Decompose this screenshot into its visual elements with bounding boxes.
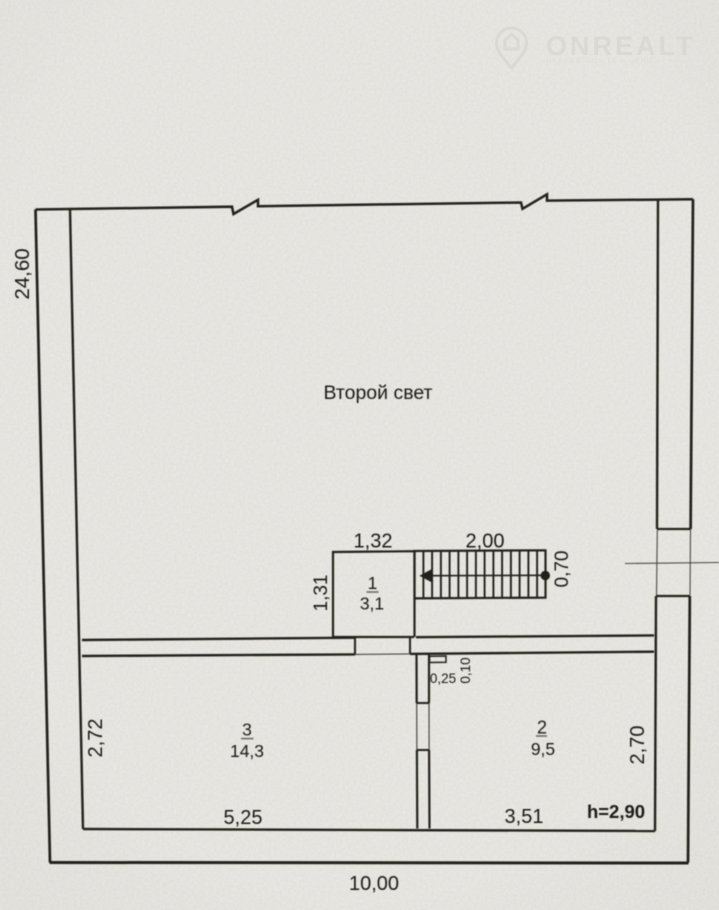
svg-text:0,70: 0,70 — [552, 551, 573, 588]
svg-text:24,60: 24,60 — [11, 248, 34, 299]
svg-text:5,25: 5,25 — [224, 807, 263, 829]
svg-text:0,25: 0,25 — [430, 671, 456, 686]
svg-text:9,5: 9,5 — [531, 739, 555, 759]
svg-text:h=2,90: h=2,90 — [587, 801, 645, 822]
svg-text:1: 1 — [368, 573, 378, 593]
svg-text:НЕДВИЖИМОСТЬ И ЦЕНЫ: НЕДВИЖИМОСТЬ И ЦЕНЫ — [547, 58, 654, 65]
svg-text:2,72: 2,72 — [85, 719, 107, 758]
svg-text:14,3: 14,3 — [230, 741, 264, 761]
svg-text:2,00: 2,00 — [466, 531, 505, 553]
svg-text:10,00: 10,00 — [349, 873, 399, 895]
svg-text:3,1: 3,1 — [360, 594, 384, 614]
svg-text:1,31: 1,31 — [311, 575, 332, 612]
svg-text:3,51: 3,51 — [505, 806, 544, 828]
svg-text:2: 2 — [537, 718, 547, 738]
svg-text:0,10: 0,10 — [458, 657, 473, 683]
svg-text:ONREALT: ONREALT — [546, 31, 696, 61]
svg-text:2,70: 2,70 — [627, 726, 649, 765]
svg-text:Второй свет: Второй свет — [324, 382, 433, 404]
svg-text:3: 3 — [242, 720, 252, 740]
svg-text:1,32: 1,32 — [354, 531, 393, 553]
